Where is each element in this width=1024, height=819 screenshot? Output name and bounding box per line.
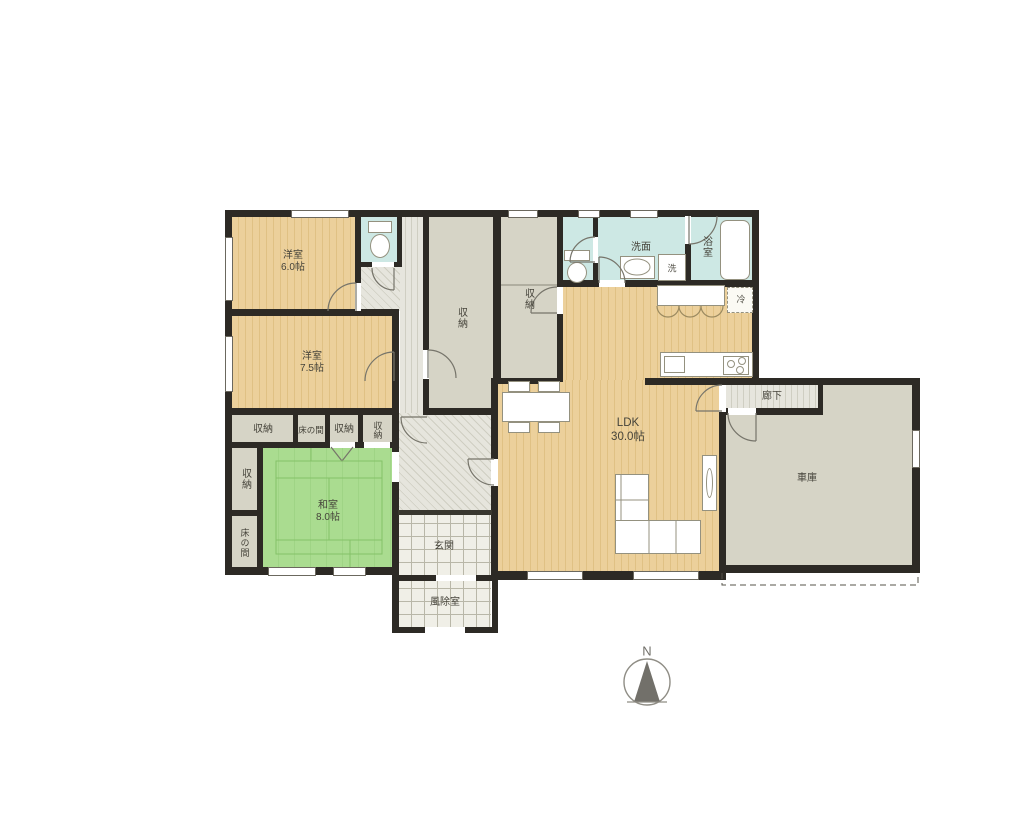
label-senmen: 洗面 [631, 242, 651, 254]
bathtub [720, 220, 750, 280]
wall [397, 210, 402, 266]
door-opening [728, 408, 756, 415]
label-closet-row-2: 収納 [334, 424, 354, 436]
wall [719, 565, 920, 573]
label-genkan: 玄関 [434, 541, 454, 553]
wall [912, 378, 920, 573]
room-hall-main [398, 413, 491, 513]
wall [493, 210, 501, 384]
door-opening [685, 216, 691, 244]
dining-chair [538, 422, 560, 433]
tv [706, 468, 713, 498]
kitchen-sink [664, 356, 685, 373]
compass-rose [624, 659, 670, 705]
window [630, 210, 658, 218]
door-opening [719, 385, 726, 412]
label-closet-row-tokonoma: 床の間 [298, 425, 324, 435]
label-tokonoma-left: 床の間 [239, 528, 252, 558]
wall [423, 210, 429, 415]
label-fridge: 冷 [736, 293, 745, 306]
garage-door-dashed-line [722, 573, 918, 585]
compass-north-label: N [642, 644, 651, 659]
room-hall-nook [361, 266, 403, 311]
door-opening [392, 452, 399, 482]
door-opening [423, 350, 429, 379]
label-laundry: 洗 [667, 262, 676, 275]
wall [257, 442, 263, 575]
genkan-step-edge [398, 510, 492, 515]
door-opening [425, 627, 465, 633]
label-yokushitsu: 浴室 [699, 236, 714, 258]
dining-chair [508, 381, 530, 392]
vanity-sink [620, 256, 655, 279]
closet-shelf-line [501, 284, 557, 286]
door-opening [364, 442, 390, 448]
wall [225, 309, 398, 316]
label-rouka: 廊下 [762, 391, 782, 403]
window [508, 210, 538, 218]
wall [818, 378, 823, 415]
toilet-bowl [567, 262, 587, 283]
wall [645, 378, 919, 385]
label-fujoshitsu: 風除室 [430, 597, 460, 609]
label-closet-row-1: 収納 [253, 424, 273, 436]
label-washitsu: 和室8.0帖 [316, 500, 340, 524]
dining-table [502, 392, 570, 422]
door-opening [599, 280, 625, 287]
label-ldk: LDK30.0帖 [611, 417, 645, 445]
wall [752, 210, 759, 382]
stove [723, 356, 749, 375]
label-closet-row-3: 収納 [372, 421, 385, 439]
door-opening [593, 237, 598, 263]
door-opening [355, 283, 361, 311]
window [578, 210, 600, 218]
window [268, 567, 316, 576]
window [527, 571, 583, 580]
window [912, 430, 920, 468]
label-yoshitsu6: 洋室6.0帖 [281, 250, 305, 274]
wall [492, 575, 498, 633]
wall [358, 411, 363, 448]
window [633, 571, 699, 580]
window [333, 567, 366, 576]
toilet-bowl [370, 234, 390, 258]
label-shako: 車庫 [797, 473, 817, 485]
room-hall-strip [400, 217, 423, 413]
wall [225, 408, 399, 415]
label-shuno-2: 収納 [521, 288, 536, 310]
window [225, 336, 233, 392]
door-opening [436, 575, 476, 581]
dining-chair [538, 381, 560, 392]
label-shuno-1: 収納 [454, 307, 469, 329]
floor-plan: 洋室6.0帖 洋室7.5帖 和室8.0帖 LDK30.0帖 収納 収納 収納 床… [0, 0, 1024, 819]
wall [423, 408, 496, 415]
breakfast-counter [657, 285, 725, 306]
toilet-tank [368, 221, 392, 233]
door-opening [330, 442, 355, 448]
window [225, 237, 233, 301]
door-opening [557, 287, 563, 314]
wall [225, 510, 263, 516]
door-opening [491, 459, 498, 486]
window [291, 210, 349, 218]
toilet-tank [564, 250, 590, 261]
door-opening [372, 262, 394, 267]
sofa-bottom-section [615, 520, 701, 554]
dining-chair [508, 422, 530, 433]
label-yoshitsu75: 洋室7.5帖 [300, 351, 324, 375]
label-shuno-left: 収納 [238, 468, 253, 490]
